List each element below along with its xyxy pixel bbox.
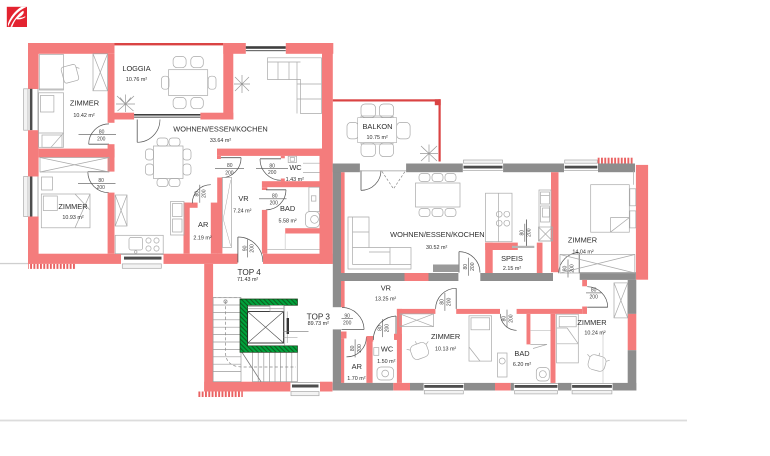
svg-text:BALKON: BALKON <box>363 122 393 131</box>
svg-text:14.04 m²: 14.04 m² <box>572 250 593 256</box>
svg-text:LOGGIA: LOGGIA <box>122 64 150 73</box>
svg-text:10.93 m²: 10.93 m² <box>62 215 83 221</box>
svg-text:200: 200 <box>570 264 576 273</box>
svg-text:200: 200 <box>447 298 453 307</box>
svg-text:10.13 m²: 10.13 m² <box>435 347 456 353</box>
svg-text:VR: VR <box>381 283 391 292</box>
svg-text:ZIMMER: ZIMMER <box>431 332 460 341</box>
svg-text:TOP 3: TOP 3 <box>307 312 331 321</box>
svg-text:200: 200 <box>384 324 390 333</box>
svg-text:200: 200 <box>202 189 208 198</box>
svg-text:10.75 m²: 10.75 m² <box>367 135 388 141</box>
svg-text:200: 200 <box>343 320 352 326</box>
svg-text:200: 200 <box>225 170 234 176</box>
svg-text:10.42 m²: 10.42 m² <box>73 113 94 119</box>
svg-text:200: 200 <box>590 295 599 301</box>
svg-text:10.24 m²: 10.24 m² <box>584 331 605 337</box>
svg-text:1.43 m²: 1.43 m² <box>286 177 304 183</box>
svg-text:WC: WC <box>289 163 302 172</box>
svg-text:200: 200 <box>97 185 106 191</box>
svg-text:AR: AR <box>198 220 208 229</box>
svg-text:6.20 m²: 6.20 m² <box>513 362 531 368</box>
svg-text:ZIMMER: ZIMMER <box>58 202 87 211</box>
svg-text:WOHNEN/ESSEN/KOCHEN: WOHNEN/ESSEN/KOCHEN <box>390 230 484 239</box>
svg-text:1.70 m²: 1.70 m² <box>347 376 365 382</box>
svg-text:13.25 m²: 13.25 m² <box>375 296 396 302</box>
svg-text:30.52 m²: 30.52 m² <box>426 245 447 251</box>
svg-text:ZIMMER: ZIMMER <box>568 235 597 244</box>
svg-text:33.64 m²: 33.64 m² <box>210 138 231 144</box>
svg-text:BAD: BAD <box>280 204 295 213</box>
svg-text:1.50 m²: 1.50 m² <box>377 359 395 365</box>
svg-text:SPEIS: SPEIS <box>501 254 523 263</box>
svg-text:BAD: BAD <box>514 349 529 358</box>
svg-text:ZIMMER: ZIMMER <box>577 318 606 327</box>
svg-text:10.76 m²: 10.76 m² <box>126 77 147 83</box>
svg-text:200: 200 <box>470 262 476 271</box>
svg-text:200: 200 <box>509 314 515 323</box>
svg-text:2.19 m²: 2.19 m² <box>193 235 211 241</box>
svg-text:WOHNEN/ESSEN/KOCHEN: WOHNEN/ESSEN/KOCHEN <box>173 124 267 133</box>
svg-text:AR: AR <box>352 362 362 371</box>
svg-text:89.73 m²: 89.73 m² <box>308 321 329 327</box>
svg-text:2.15 m²: 2.15 m² <box>503 266 521 272</box>
svg-text:200: 200 <box>270 201 279 207</box>
svg-text:200: 200 <box>357 344 363 353</box>
svg-text:VR: VR <box>238 194 248 203</box>
svg-text:TOP 4: TOP 4 <box>238 268 262 277</box>
svg-text:200: 200 <box>97 136 106 142</box>
svg-text:200: 200 <box>249 244 255 253</box>
svg-text:5.58 m²: 5.58 m² <box>278 219 296 225</box>
svg-text:WC: WC <box>381 344 394 353</box>
svg-text:200: 200 <box>268 170 277 176</box>
svg-text:200: 200 <box>527 228 533 237</box>
svg-text:7.24 m²: 7.24 m² <box>233 209 251 215</box>
svg-text:71.43 m²: 71.43 m² <box>237 277 258 283</box>
svg-text:ZIMMER: ZIMMER <box>70 99 99 108</box>
